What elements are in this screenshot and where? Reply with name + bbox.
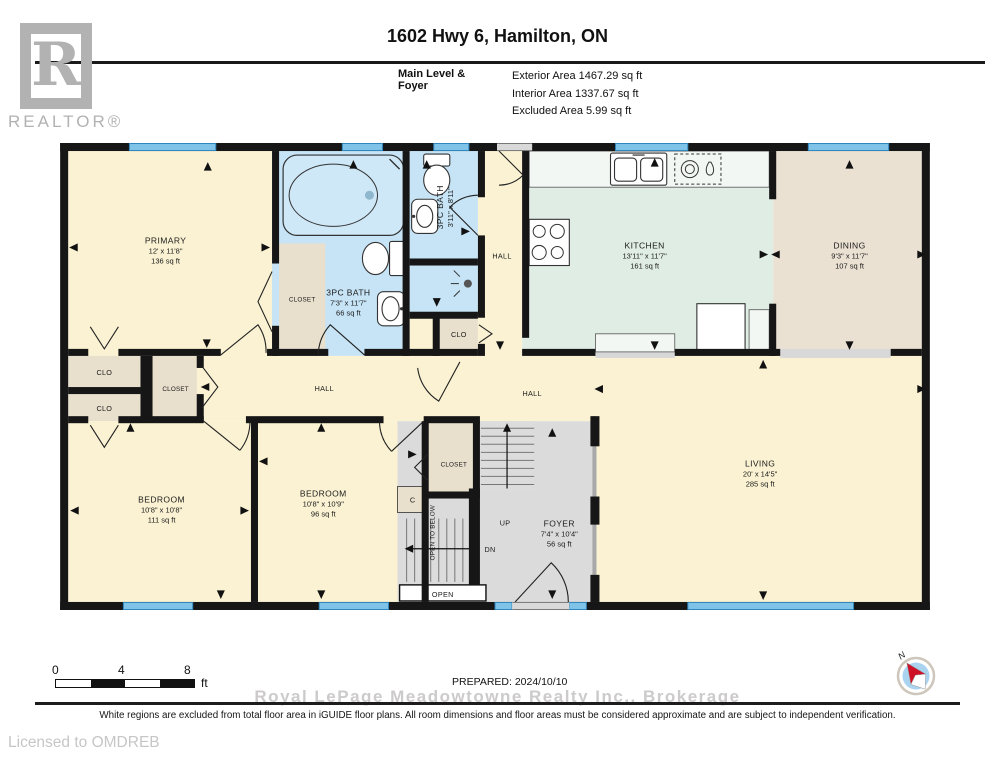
closet-c-label: C — [410, 496, 416, 505]
excluded-area: Excluded Area 5.99 sq ft — [512, 103, 642, 121]
door-entry-foyer — [512, 602, 569, 609]
clo2-label: CLO — [96, 404, 112, 413]
bathtub-icon — [283, 155, 404, 235]
level-summary: Main Level & Foyer Exterior Area 1467.29… — [398, 68, 642, 121]
window-living — [688, 602, 854, 609]
page-title: 1602 Hwy 6, Hamilton, ON — [0, 26, 995, 47]
scale-tick-8: 8 — [184, 663, 191, 677]
window-kitchen — [616, 144, 688, 151]
header-rule — [35, 61, 985, 64]
primary-name: PRIMARY — [145, 235, 186, 245]
floor-plan: PRIMARY 12' x 11'8" 136 sq ft 3PC BATH 7… — [60, 143, 930, 610]
living-dims: 20' x 14'5" — [743, 469, 778, 478]
hall-main-label: HALL — [315, 384, 334, 393]
dining-dims: 9'3" x 11'7" — [831, 251, 868, 260]
bath-main-name: 3PC BATH — [326, 288, 370, 298]
level-label: Main Level & Foyer — [398, 68, 498, 121]
realtor-logo-word: REALTOR® — [8, 112, 123, 132]
licensed-to: Licensed to OMDREB — [8, 734, 160, 752]
area-lines: Exterior Area 1467.29 sq ft Interior Are… — [512, 68, 642, 121]
bath-main-area: 66 sq ft — [336, 309, 362, 318]
living-area: 285 sq ft — [746, 479, 776, 488]
bath-main-dims: 7'3" x 11'7" — [330, 299, 367, 308]
window-primary — [129, 144, 215, 151]
stairs-up — [480, 421, 534, 491]
kitchen-area: 161 sq ft — [630, 262, 660, 271]
scale-tick-4: 4 — [118, 663, 125, 677]
stove-icon — [529, 219, 569, 265]
window-bath-main — [342, 144, 382, 151]
kitchen-dims: 13'11" x 11'7" — [623, 251, 668, 260]
bedroom1-name: BEDROOM — [138, 495, 185, 505]
opening-dining-living — [780, 349, 890, 358]
bedroom2-area: 96 sq ft — [311, 510, 337, 519]
toilet-icon-main — [362, 241, 404, 275]
closet-primary-label: CLOSET — [289, 297, 315, 304]
hall-right-label: HALL — [523, 389, 542, 398]
sidelight-right — [569, 602, 586, 609]
scale-tick-0: 0 — [52, 663, 59, 677]
foyer-dims: 7'4" x 10'4" — [541, 530, 578, 539]
up-label: UP — [500, 519, 511, 528]
window-bedroom2 — [319, 602, 388, 609]
bedroom1-dims: 10'8" x 10'8" — [141, 506, 183, 515]
bedroom1-area: 111 sq ft — [148, 516, 177, 525]
primary-dims: 12' x 11'8" — [149, 246, 183, 255]
kitchen-name: KITCHEN — [625, 240, 665, 250]
open-to-below-label: OPEN TO BELOW — [430, 505, 437, 560]
disclaimer-text: White regions are excluded from total fl… — [0, 710, 995, 721]
primary-area: 136 sq ft — [151, 257, 181, 266]
bath-small-dims: 3'11" x 8'11" — [446, 187, 455, 227]
window-bedroom1 — [123, 602, 192, 609]
room-bedroom2 — [258, 421, 422, 602]
kitchen-sink-icon — [610, 153, 666, 185]
interior-area: Interior Area 1337.67 sq ft — [512, 86, 642, 104]
exterior-area: Exterior Area 1467.29 sq ft — [512, 68, 642, 86]
living-name: LIVING — [745, 458, 775, 468]
sink-icon-main — [377, 292, 404, 326]
dining-area: 107 sq ft — [835, 262, 865, 271]
hall-vertical-label: HALL — [492, 251, 511, 260]
bath-small-name: 3PC BATH — [435, 185, 445, 229]
floor-plan-page: R REALTOR® 1602 Hwy 6, Hamilton, ON Main… — [0, 0, 995, 768]
bedroom2-dims: 10'8" x 10'9" — [303, 500, 345, 509]
foyer-area: 56 sq ft — [547, 540, 573, 549]
dn-label: DN — [484, 545, 495, 554]
footer-rule — [35, 702, 960, 705]
sidelight-left — [495, 602, 512, 609]
clo3-label: CLO — [451, 330, 467, 339]
window-bath-small — [434, 144, 469, 151]
open-label: OPEN — [432, 590, 454, 599]
dining-name: DINING — [833, 240, 865, 250]
door-entry-top — [497, 144, 532, 151]
closet-bedroom2 — [428, 421, 480, 491]
closet-bedroom2-label: CLOSET — [441, 461, 467, 468]
bedroom2-name: BEDROOM — [300, 489, 347, 499]
fridge-icon — [697, 304, 745, 352]
closet-hall-label: CLOSET — [162, 386, 188, 393]
window-dining — [808, 144, 888, 151]
foyer-name: FOYER — [544, 519, 575, 529]
clo1-label: CLO — [96, 368, 112, 377]
